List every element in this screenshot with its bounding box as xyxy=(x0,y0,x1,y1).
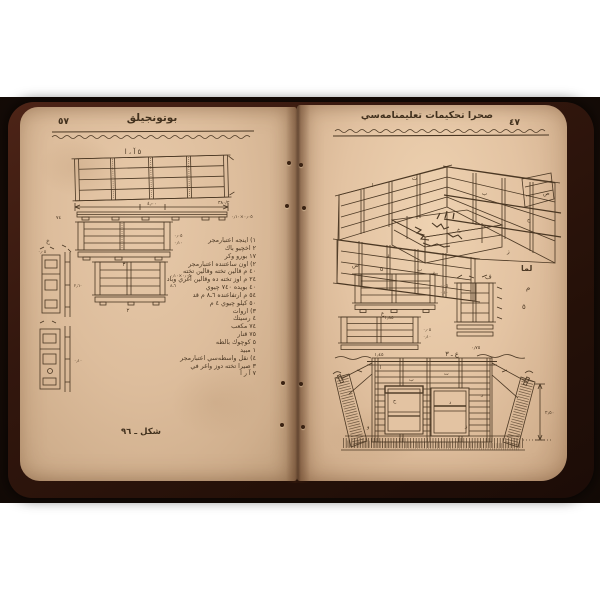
top-margin xyxy=(0,0,600,97)
binding-hole xyxy=(302,206,306,210)
svg-text:خ: خ xyxy=(46,238,50,245)
svg-text:٠٫٠٥: ٠٫٠٥ xyxy=(440,283,448,288)
margin-annotations: لما م ٥ xyxy=(521,264,532,311)
legend-line: ١ مبيد xyxy=(161,347,256,355)
svg-text:ز: ز xyxy=(464,424,468,430)
svg-text:٤٫٠٠: ٤٫٠٠ xyxy=(147,201,157,207)
svg-text:م: م xyxy=(526,284,530,292)
binding-hole xyxy=(299,382,303,386)
panel-a xyxy=(72,155,235,201)
legend-line: ٤٠ بويده ٧٤٠ چيوي xyxy=(161,284,256,292)
legend-line: ١٧ بورو وكر xyxy=(161,253,256,261)
trench-floor xyxy=(341,436,525,450)
svg-text:٧٤: ٧٤ xyxy=(56,216,62,221)
svg-text:٠٫٠٥: ٠٫٠٥ xyxy=(38,249,46,254)
svg-text:٢٫٦٠: ٢٫٦٠ xyxy=(74,283,82,288)
legend-line: ١) اينجه اعتبارمجر xyxy=(161,237,256,245)
legend-line: ٢ اخچيو باك xyxy=(161,245,256,253)
svg-text:٠٫٠٥: ٠٫٠٥ xyxy=(423,327,431,332)
panel-a-edge-view: ٧٤ ٠٫٠٥×٠٫١٠ xyxy=(56,212,253,221)
svg-text:خ: خ xyxy=(457,227,461,233)
legend-line: ٧ آ ر ا xyxy=(161,370,256,378)
svg-text:ص: ص xyxy=(543,191,550,197)
figure-caption: شكل ـ ٦٩ xyxy=(106,427,176,437)
book-photo: ٧٥ بوتونجيلق ٥ آ ، ا xyxy=(0,97,600,503)
trench-cross-section: ع ـ ٣ xyxy=(297,348,567,466)
svg-text:ت: ت xyxy=(444,371,449,377)
svg-text:ب: ب xyxy=(417,267,422,273)
legend-line: ٥٠ كيلو چيوي ٤ م xyxy=(161,300,256,308)
legend-line: ٤ رسيتك xyxy=(161,315,256,323)
materials-legend: ١) اينجه اعتبارمجر٢ اخچيو باك١٧ بورو وكر… xyxy=(161,237,256,378)
depth-dimension: ٢٫٥٠ xyxy=(523,384,554,440)
svg-text:٣٨٠/٢: ٣٨٠/٢ xyxy=(218,200,230,206)
legend-line: ٧٤ مكعب xyxy=(161,323,256,331)
right-page-header: صحرا تحكيمات تعليمنامه‌سي xyxy=(352,110,502,121)
side-panel-2: ٠٫١٠ xyxy=(40,321,82,392)
binding-hole xyxy=(301,425,305,429)
left-page-header: بوتونجيلق xyxy=(112,112,192,124)
svg-text:٠٫١٠: ٠٫١٠ xyxy=(440,290,448,295)
panel-f: ٠٫٧٥ xyxy=(454,275,502,351)
svg-text:ف: ف xyxy=(485,273,492,281)
svg-text:ح: ح xyxy=(527,217,531,223)
binding-hole xyxy=(280,423,284,427)
panel-a-dimension: ٤٫٠٠ ٣٨٠/٢ xyxy=(75,200,230,211)
right-page: ٧٤ صحرا تحكيمات تعليمنامه‌سي xyxy=(297,105,567,481)
legend-line: ٢٤ م اوز تخته ده وقالين آغري وباد xyxy=(161,276,256,284)
svg-text:٠٫١٠: ٠٫١٠ xyxy=(74,358,82,363)
binding-hole xyxy=(281,381,285,385)
binding-hole xyxy=(287,161,291,165)
svg-text:٥: ٥ xyxy=(522,303,526,311)
svg-text:لما: لما xyxy=(521,264,532,273)
svg-text:ز: ز xyxy=(506,249,510,255)
left-page: ٧٥ بوتونجيلق ٥ آ ، ا xyxy=(20,107,297,481)
legend-line: ٤) نقل واسطه‌سي اعتبارمجر xyxy=(161,355,256,363)
legend-line: ٢) اون ساعتنده اعتبارمجر xyxy=(161,261,256,269)
svg-text:د: د xyxy=(449,400,451,406)
svg-text:٢٫٥٠: ٢٫٥٠ xyxy=(545,410,554,416)
bottom-margin xyxy=(0,503,600,600)
timber-wall xyxy=(367,358,497,442)
legend-line: ٥ كوچوك بالطه xyxy=(161,339,256,347)
svg-text:ا: ا xyxy=(380,365,381,371)
svg-text:ع ـ ٣: ع ـ ٣ xyxy=(445,350,459,358)
binding-hole xyxy=(285,204,289,208)
svg-text:و: و xyxy=(366,424,370,430)
svg-text:ب: ب xyxy=(482,191,487,197)
svg-text:٥: ٥ xyxy=(380,266,383,273)
left-page-number: ٧٥ xyxy=(58,117,69,127)
legend-line: ٥٤ م ارتفاعنده ٦ـ٨ م قد xyxy=(161,292,256,300)
legend-line: ٣) اروات xyxy=(161,308,256,316)
right-page-upper-diagrams: ا ت ب ح خ د ر ز س ص ٥ ف لما م ٥ xyxy=(297,135,567,353)
panel-a-label: ٥ آ ، ا xyxy=(125,147,142,156)
svg-text:٠٫١٠: ٠٫١٠ xyxy=(423,334,431,339)
binding-hole xyxy=(299,163,303,167)
legend-line: ٧٥ قنار xyxy=(161,331,256,339)
svg-text:ر: ر xyxy=(480,392,484,398)
svg-text:٠٫٠٥×٠٫١٠: ٠٫٠٥×٠٫١٠ xyxy=(231,214,253,220)
svg-text:٣: ٣ xyxy=(123,262,126,268)
perspective-drawing: ا ت ب ح خ د ر ز س ص ٥ ف xyxy=(333,165,561,302)
svg-text:ب: ب xyxy=(409,377,414,383)
svg-text:س: س xyxy=(352,263,359,269)
svg-text:ت: ت xyxy=(412,176,417,182)
svg-text:٢: ٢ xyxy=(127,308,130,314)
